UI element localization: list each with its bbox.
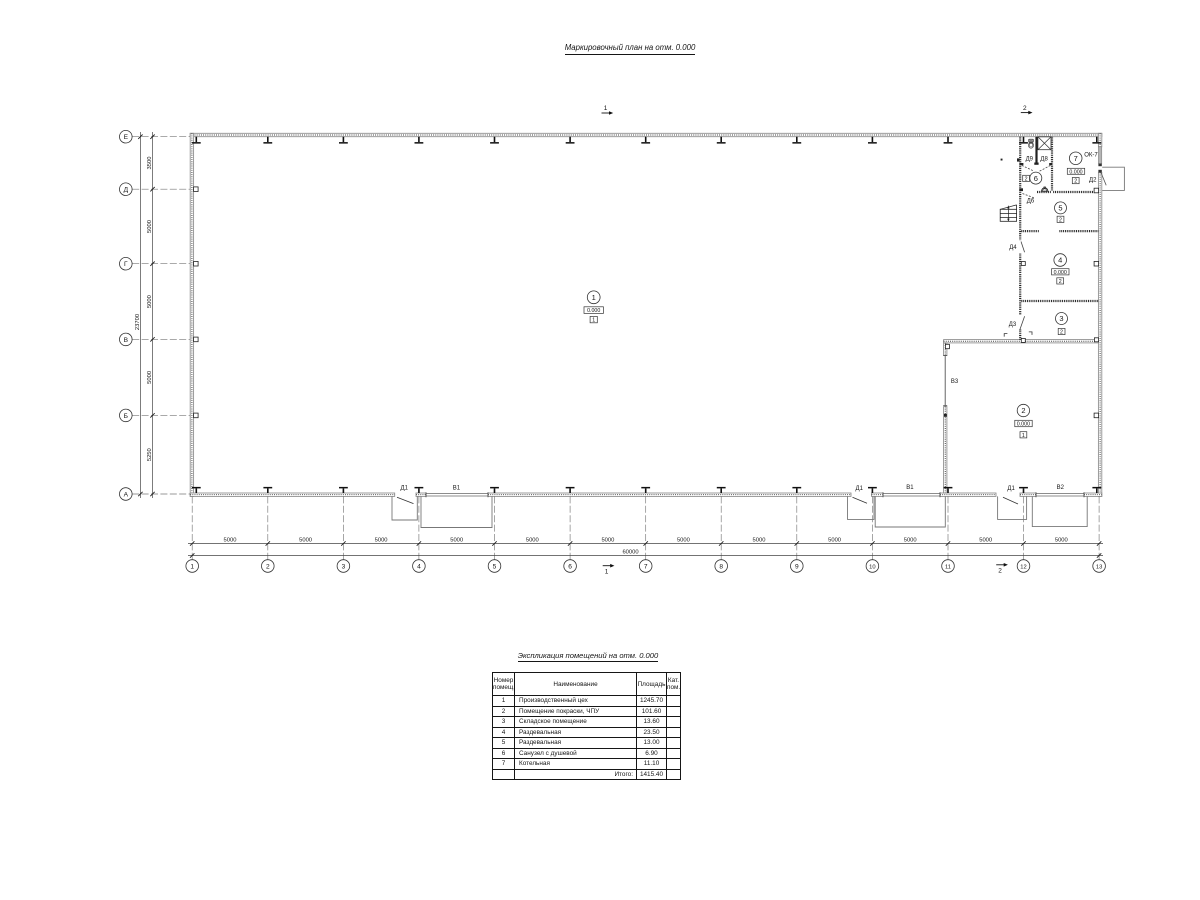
svg-text:2: 2: [1023, 105, 1027, 112]
svg-text:2: 2: [1074, 179, 1077, 185]
svg-text:8: 8: [719, 563, 723, 570]
svg-text:Д3: Д3: [1009, 322, 1017, 328]
svg-text:2: 2: [1021, 406, 1025, 415]
svg-text:11: 11: [945, 564, 951, 570]
svg-text:0.000: 0.000: [587, 308, 600, 314]
svg-text:1: 1: [190, 563, 194, 570]
svg-text:10: 10: [869, 564, 875, 570]
svg-text:5000: 5000: [224, 537, 237, 543]
svg-text:5: 5: [493, 563, 497, 570]
svg-text:5000: 5000: [147, 295, 153, 308]
svg-text:3: 3: [1059, 314, 1063, 323]
svg-text:0.000: 0.000: [1017, 422, 1030, 428]
svg-text:1: 1: [1022, 433, 1025, 439]
svg-text:0.000: 0.000: [1069, 169, 1082, 175]
svg-text:7: 7: [644, 563, 648, 570]
svg-text:0.000: 0.000: [1054, 270, 1067, 276]
svg-text:В1: В1: [453, 485, 461, 491]
svg-text:Д6: Д6: [1027, 198, 1035, 204]
svg-text:Г: Г: [124, 261, 128, 268]
svg-text:5000: 5000: [979, 537, 992, 543]
svg-text:1: 1: [592, 293, 596, 302]
svg-text:5000: 5000: [1055, 537, 1068, 543]
svg-text:60000: 60000: [622, 549, 638, 555]
svg-text:Д1: Д1: [856, 486, 864, 492]
svg-text:Д4: Д4: [1009, 245, 1017, 251]
svg-text:6: 6: [1034, 174, 1038, 183]
svg-text:Д9: Д9: [1026, 156, 1034, 162]
svg-text:2: 2: [1025, 176, 1028, 182]
svg-text:5000: 5000: [677, 537, 690, 543]
svg-text:В2: В2: [1057, 485, 1065, 491]
svg-text:7: 7: [1074, 154, 1078, 163]
svg-text:В: В: [124, 337, 129, 344]
svg-text:3: 3: [342, 563, 346, 570]
svg-text:5000: 5000: [147, 371, 153, 384]
svg-text:4: 4: [1058, 256, 1062, 265]
svg-text:12: 12: [1020, 564, 1026, 570]
svg-text:4: 4: [417, 563, 421, 570]
svg-text:В3: В3: [951, 379, 959, 385]
svg-text:2: 2: [266, 563, 270, 570]
svg-text:2: 2: [998, 568, 1002, 575]
svg-text:5000: 5000: [526, 537, 539, 543]
svg-text:Д1: Д1: [401, 486, 409, 492]
svg-text:3500: 3500: [147, 157, 153, 170]
svg-text:Д2: Д2: [1089, 178, 1097, 184]
svg-text:5000: 5000: [299, 537, 312, 543]
svg-text:5000: 5000: [450, 537, 463, 543]
svg-text:13: 13: [1096, 564, 1102, 570]
svg-text:Д8: Д8: [1040, 156, 1048, 162]
svg-text:1: 1: [592, 318, 595, 324]
svg-text:9: 9: [795, 563, 799, 570]
svg-text:Е: Е: [124, 134, 129, 141]
svg-text:2: 2: [1059, 279, 1062, 285]
svg-text:А: А: [124, 491, 129, 498]
svg-text:5000: 5000: [375, 537, 388, 543]
svg-text:5000: 5000: [828, 537, 841, 543]
svg-text:1: 1: [604, 105, 608, 112]
svg-text:Б: Б: [124, 413, 128, 420]
svg-text:2: 2: [1060, 330, 1063, 336]
svg-text:В1: В1: [906, 485, 914, 491]
svg-text:6: 6: [568, 563, 572, 570]
svg-text:5000: 5000: [904, 537, 917, 543]
svg-text:5000: 5000: [753, 537, 766, 543]
svg-text:2: 2: [1059, 217, 1062, 223]
svg-text:ОК-7: ОК-7: [1084, 152, 1098, 158]
svg-text:5: 5: [1058, 204, 1062, 213]
svg-text:5000: 5000: [147, 220, 153, 233]
svg-text:23700: 23700: [135, 314, 141, 330]
svg-text:Д1: Д1: [1007, 486, 1015, 492]
svg-text:1: 1: [605, 569, 609, 576]
svg-text:5250: 5250: [147, 448, 153, 461]
svg-text:Д: Д: [124, 187, 129, 194]
svg-text:5000: 5000: [601, 537, 614, 543]
